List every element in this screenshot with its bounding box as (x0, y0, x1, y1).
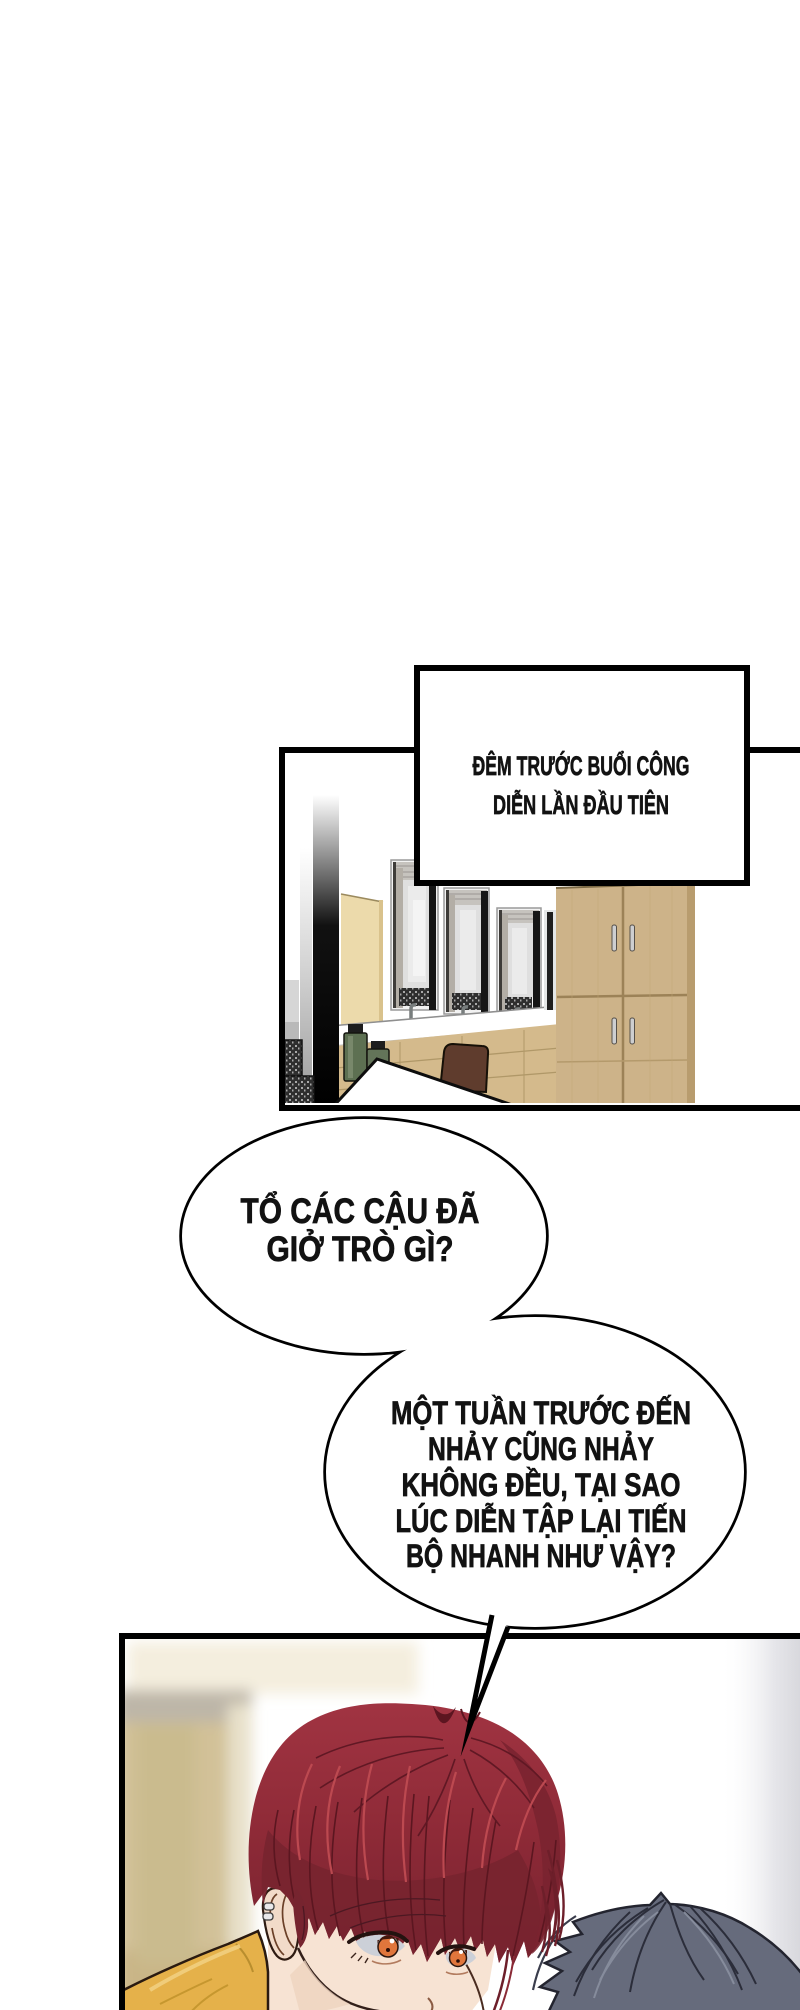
svg-text:MỘT TUẦN TRƯỚC ĐẾN: MỘT TUẦN TRƯỚC ĐẾN (391, 1395, 691, 1431)
svg-text:GIỞ TRÒ GÌ?: GIỞ TRÒ GÌ? (267, 1229, 454, 1269)
svg-text:LÚC DIỄN TẬP LẠI TIẾN: LÚC DIỄN TẬP LẠI TIẾN (396, 1503, 687, 1539)
svg-text:BỘ NHANH NHƯ VẬY?: BỘ NHANH NHƯ VẬY? (406, 1538, 676, 1574)
svg-text:KHÔNG ĐỀU, TẠI SAO: KHÔNG ĐỀU, TẠI SAO (402, 1467, 681, 1503)
svg-text:TỔ CÁC CẬU ĐÃ: TỔ CÁC CẬU ĐÃ (241, 1191, 480, 1231)
svg-text:DIỄN LẦN ĐẦU TIÊN: DIỄN LẦN ĐẦU TIÊN (493, 789, 669, 820)
svg-text:ĐÊM TRƯỚC BUỔI CÔNG: ĐÊM TRƯỚC BUỔI CÔNG (473, 750, 690, 781)
svg-text:NHẢY CŨNG NHẢY: NHẢY CŨNG NHẢY (428, 1431, 654, 1467)
